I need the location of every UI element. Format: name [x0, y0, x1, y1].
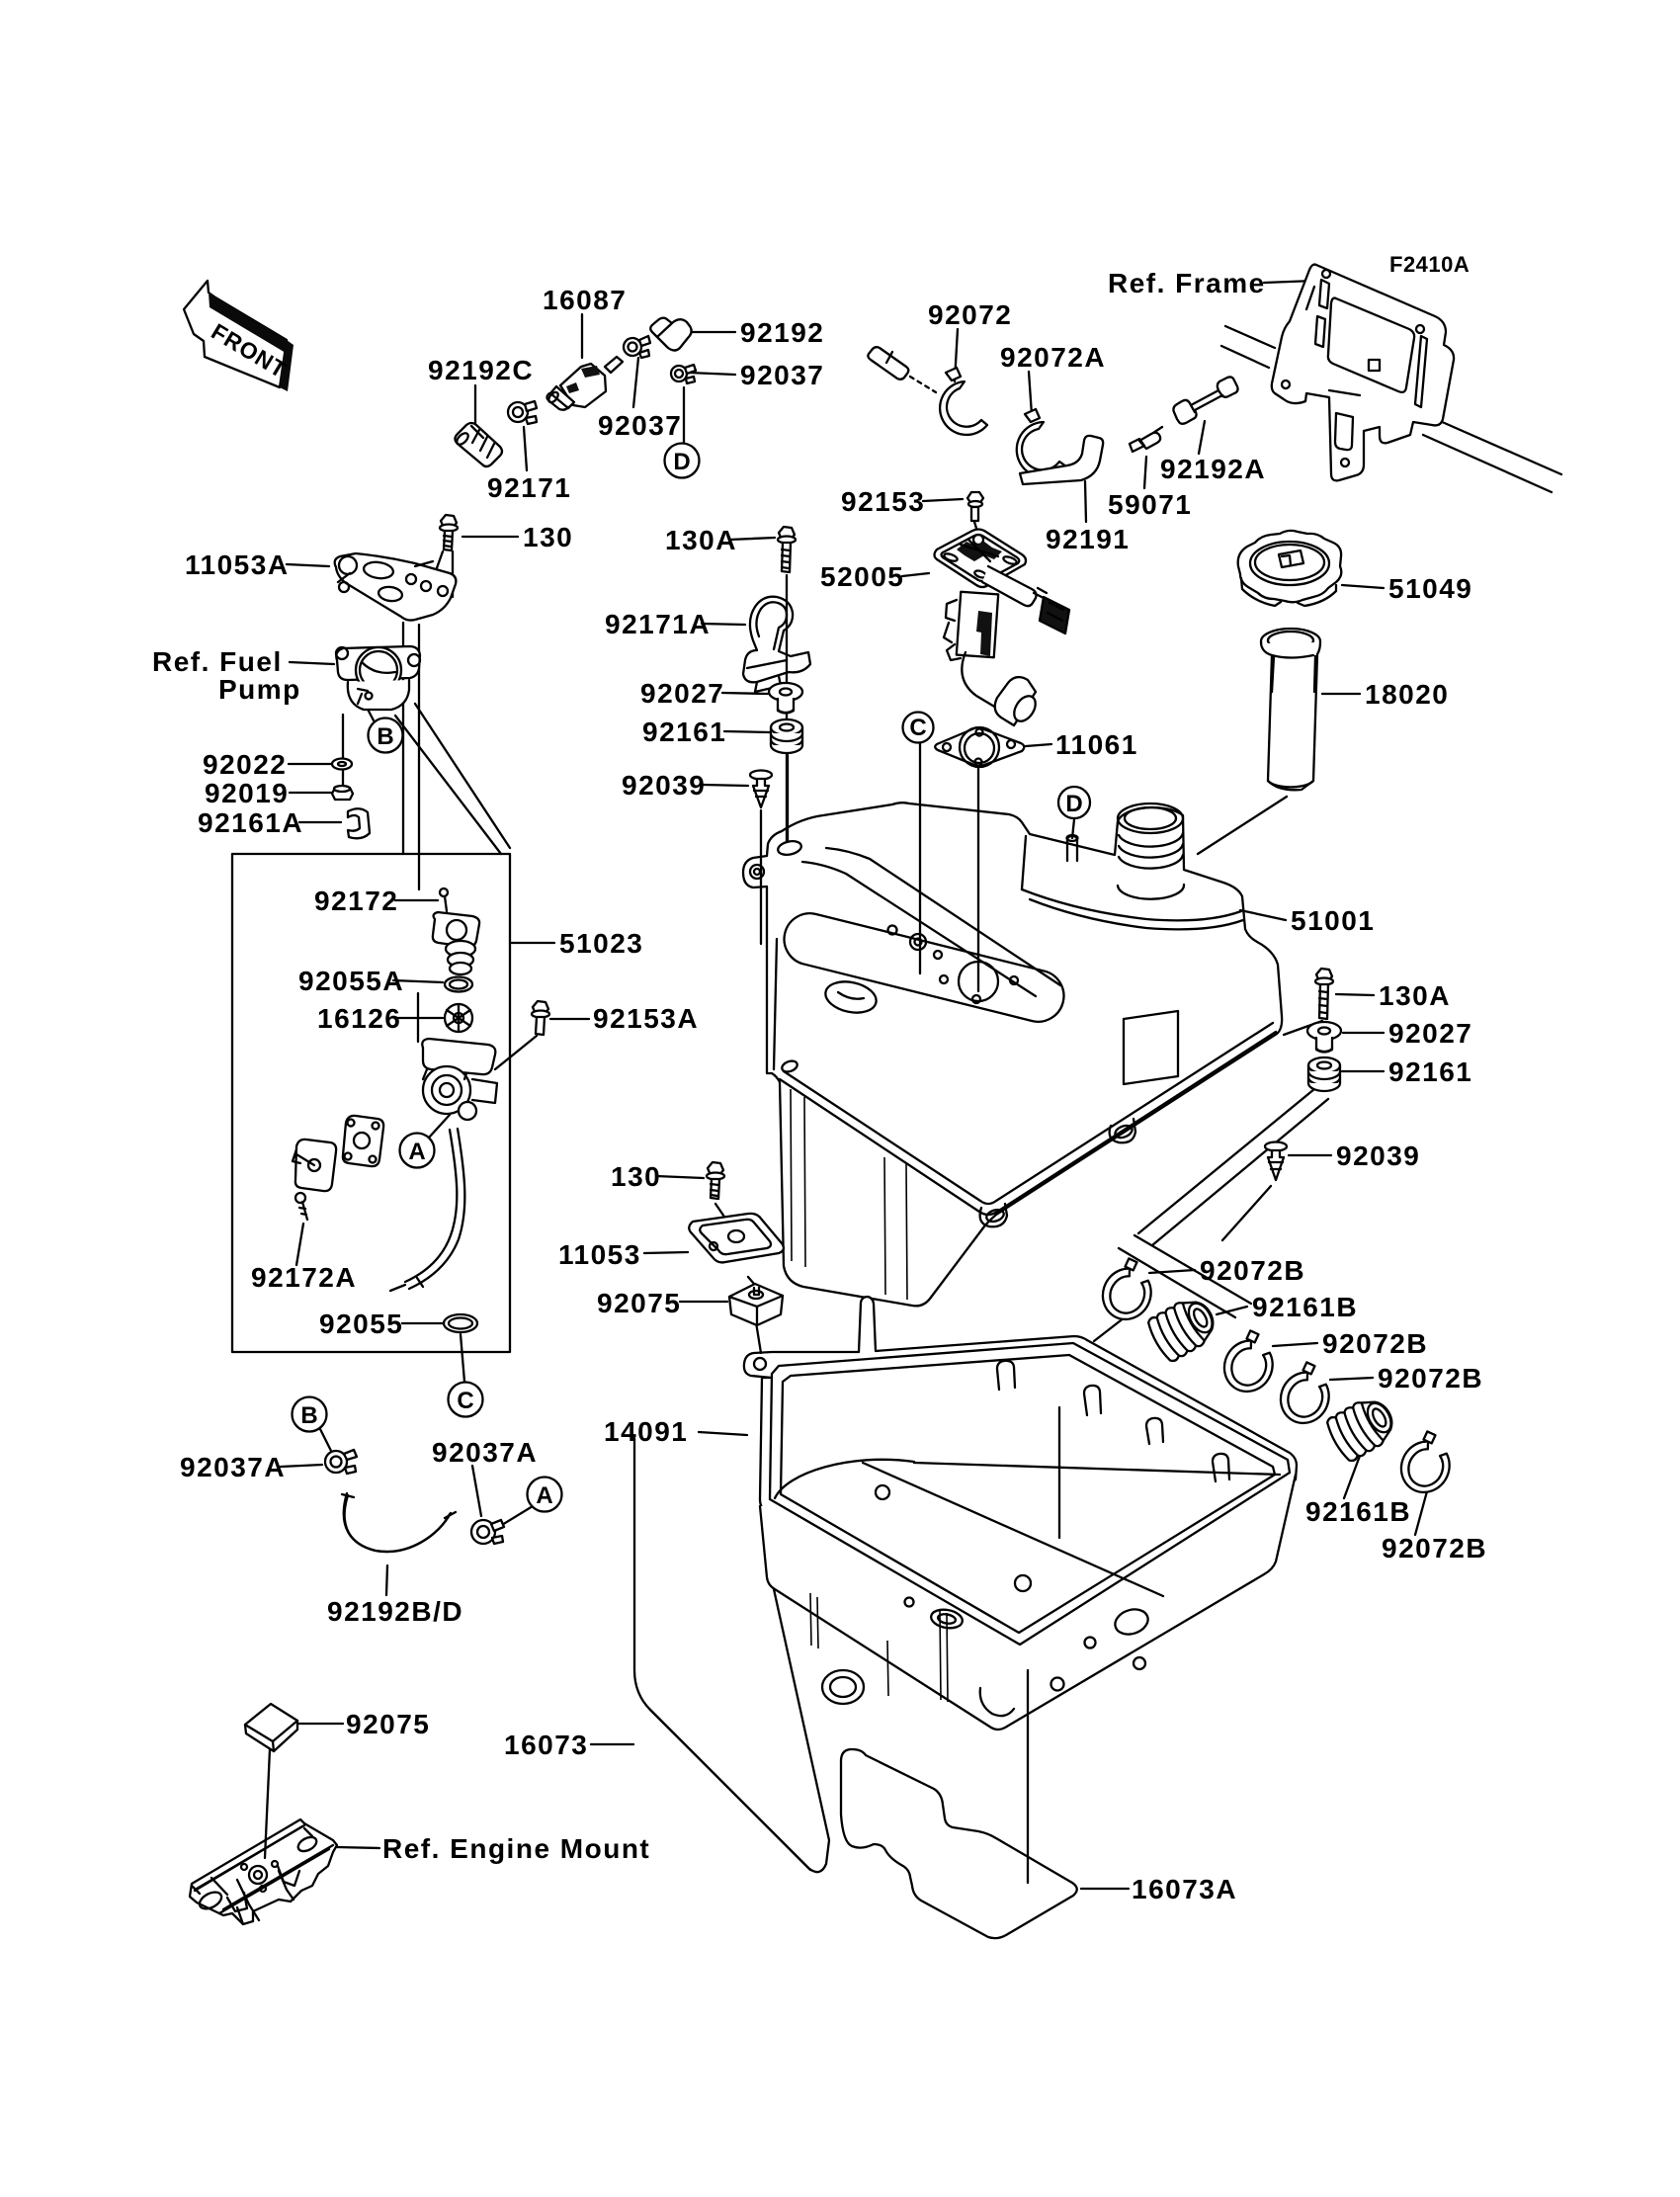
svg-text:130: 130: [523, 522, 573, 552]
svg-text:92192: 92192: [740, 317, 824, 348]
svg-text:92161: 92161: [642, 717, 726, 747]
svg-text:92055: 92055: [319, 1309, 403, 1339]
svg-text:14091: 14091: [604, 1416, 688, 1447]
svg-text:16126: 16126: [317, 1003, 401, 1034]
svg-text:92075: 92075: [346, 1709, 430, 1739]
svg-text:92027: 92027: [1388, 1018, 1472, 1049]
svg-text:B: B: [300, 1402, 317, 1429]
svg-text:11053: 11053: [558, 1239, 641, 1270]
svg-text:92055A: 92055A: [298, 966, 404, 996]
svg-text:92072: 92072: [928, 299, 1012, 330]
svg-text:51023: 51023: [559, 928, 643, 959]
svg-text:92037A: 92037A: [180, 1452, 286, 1482]
svg-text:Ref. Frame: Ref. Frame: [1108, 268, 1266, 298]
svg-text:92153: 92153: [841, 486, 925, 517]
svg-text:92072B: 92072B: [1382, 1533, 1487, 1563]
svg-text:92072B: 92072B: [1322, 1328, 1428, 1359]
svg-text:92037: 92037: [740, 360, 824, 390]
svg-text:92172: 92172: [314, 886, 398, 916]
svg-text:92172A: 92172A: [251, 1262, 357, 1293]
svg-text:130A: 130A: [665, 525, 737, 555]
svg-text:C: C: [457, 1388, 473, 1414]
svg-text:F2410A: F2410A: [1389, 252, 1470, 277]
svg-text:92022: 92022: [203, 749, 287, 780]
svg-text:92027: 92027: [640, 678, 724, 709]
svg-text:16073A: 16073A: [1132, 1874, 1237, 1904]
svg-text:92039: 92039: [622, 770, 706, 801]
svg-text:52005: 52005: [820, 561, 904, 592]
svg-text:92019: 92019: [205, 778, 289, 808]
svg-text:D: D: [1065, 791, 1082, 817]
svg-text:92171: 92171: [487, 472, 571, 503]
svg-text:Pump: Pump: [218, 674, 301, 705]
svg-text:18020: 18020: [1365, 679, 1449, 710]
svg-text:92153A: 92153A: [593, 1003, 699, 1034]
svg-text:92039: 92039: [1336, 1141, 1420, 1171]
svg-text:92037A: 92037A: [432, 1437, 538, 1468]
svg-text:B: B: [377, 723, 393, 750]
svg-text:92191: 92191: [1046, 524, 1130, 554]
svg-text:92161B: 92161B: [1252, 1292, 1358, 1322]
svg-text:92072B: 92072B: [1378, 1363, 1483, 1394]
svg-text:A: A: [408, 1139, 425, 1165]
svg-text:51001: 51001: [1291, 905, 1375, 936]
svg-text:11053A: 11053A: [185, 549, 290, 580]
svg-text:A: A: [536, 1482, 552, 1509]
svg-text:130: 130: [611, 1161, 661, 1192]
svg-text:16073: 16073: [504, 1730, 588, 1760]
svg-text:92072B: 92072B: [1200, 1255, 1305, 1286]
svg-text:16087: 16087: [543, 285, 627, 315]
svg-text:92075: 92075: [597, 1288, 681, 1318]
svg-text:59071: 59071: [1108, 489, 1192, 520]
svg-text:92161B: 92161B: [1305, 1496, 1411, 1527]
svg-text:92072A: 92072A: [1000, 342, 1106, 373]
svg-text:92192A: 92192A: [1160, 454, 1266, 484]
svg-text:92192B/D: 92192B/D: [327, 1596, 463, 1627]
svg-text:92037: 92037: [598, 410, 682, 441]
svg-text:C: C: [909, 715, 926, 741]
svg-text:130A: 130A: [1379, 980, 1451, 1011]
svg-text:92192C: 92192C: [428, 355, 534, 385]
svg-text:51049: 51049: [1388, 573, 1472, 604]
svg-text:92171A: 92171A: [605, 609, 711, 639]
svg-text:Ref. Fuel: Ref. Fuel: [152, 646, 283, 677]
svg-text:92161: 92161: [1388, 1056, 1472, 1087]
svg-text:11061: 11061: [1055, 729, 1138, 760]
svg-text:D: D: [673, 449, 690, 475]
svg-text:92161A: 92161A: [198, 807, 303, 838]
svg-text:Ref. Engine Mount: Ref. Engine Mount: [382, 1833, 650, 1864]
